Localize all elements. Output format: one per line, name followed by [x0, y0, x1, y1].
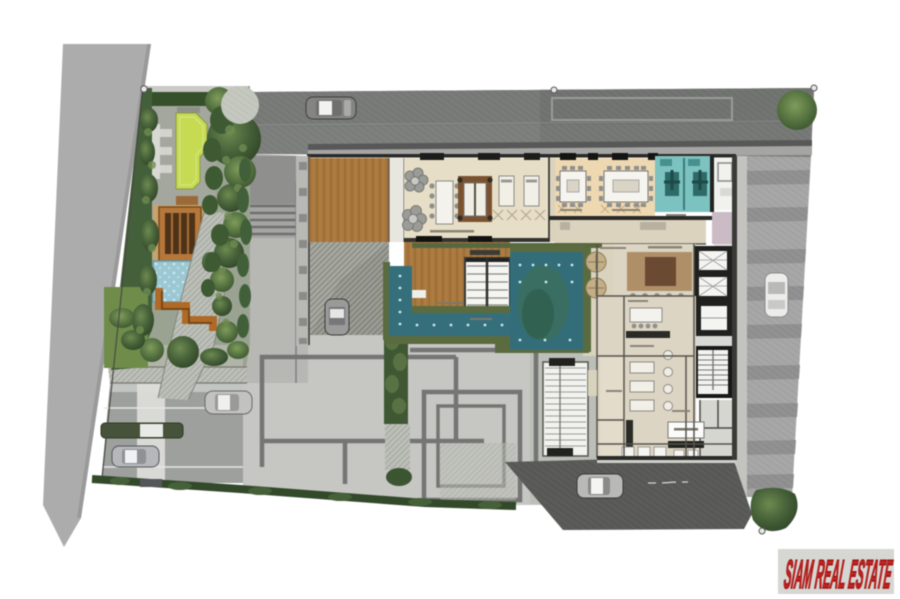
svg-text:SIAM REAL ESTATE: SIAM REAL ESTATE — [782, 553, 895, 598]
